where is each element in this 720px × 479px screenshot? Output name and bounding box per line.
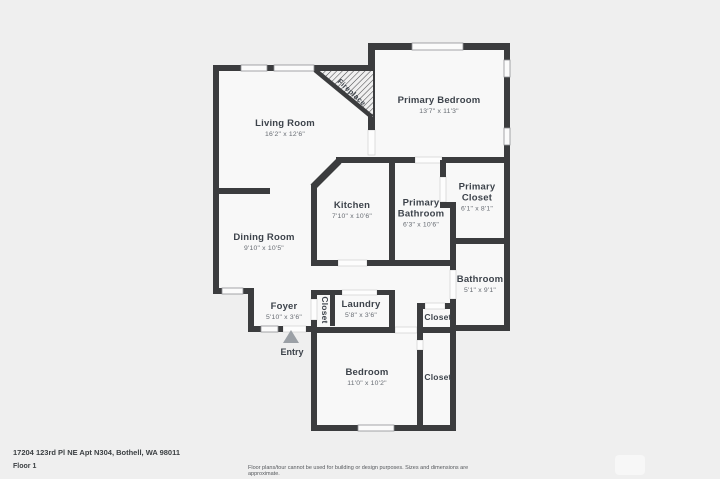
address-block: 17204 123rd Pl NE Apt N304, Bothell, WA … bbox=[13, 448, 180, 470]
floor-label: Floor 1 bbox=[13, 463, 180, 470]
floor-plan-page: Fireplace Living Room 16'2" x 12'6" Prim… bbox=[0, 0, 720, 479]
floor-plan-drawing: Fireplace bbox=[0, 0, 720, 479]
watermark bbox=[615, 455, 645, 475]
address-text: 17204 123rd Pl NE Apt N304, Bothell, WA … bbox=[13, 448, 180, 457]
disclaimer-text: Floor plans/tour cannot be used for buil… bbox=[248, 465, 478, 477]
